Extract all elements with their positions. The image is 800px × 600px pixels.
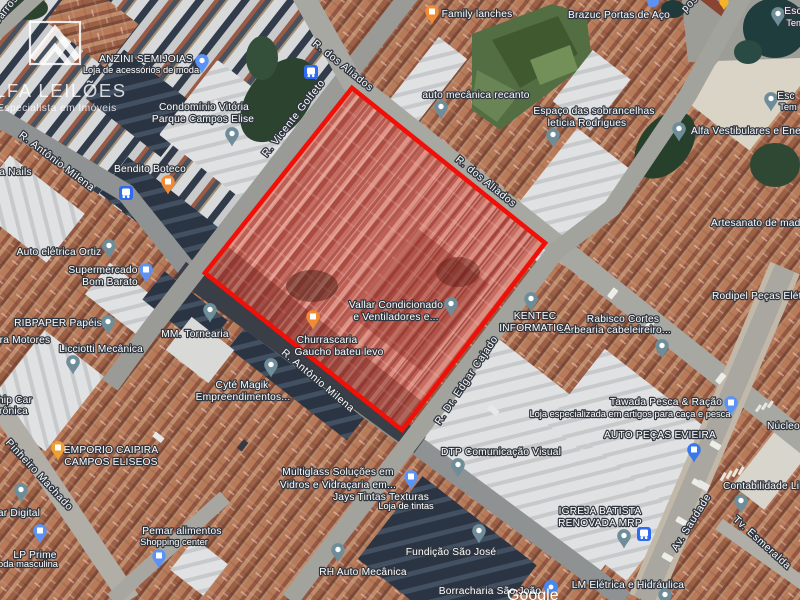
svg-text:Bendito Boteco: Bendito Boteco	[114, 164, 186, 175]
svg-text:DTP Comunicação Visual: DTP Comunicação Visual	[441, 447, 561, 458]
svg-text:ANZINI SEMIJOIAS: ANZINI SEMIJOIAS	[99, 54, 193, 65]
svg-text:Fundição São José: Fundição São José	[406, 547, 497, 558]
svg-text:Núcleo: Núcleo	[767, 421, 800, 432]
svg-text:EMPORIO CAIPIRA: EMPORIO CAIPIRA	[64, 445, 159, 456]
svg-text:Multiglass Soluções em: Multiglass Soluções em	[282, 467, 393, 478]
svg-text:INFORMATICA: INFORMATICA	[499, 323, 571, 334]
svg-text:RIBPAPER Papéis: RIBPAPER Papéis	[14, 318, 102, 329]
svg-text:hip Car: hip Car	[0, 395, 33, 406]
svg-text:Vidros e Vidraçaria em...: Vidros e Vidraçaria em...	[280, 480, 396, 491]
svg-text:Empreendimentos...: Empreendimentos...	[196, 392, 291, 403]
svg-text:Auto elétrica Ortiz: Auto elétrica Ortiz	[17, 247, 102, 258]
svg-text:Gaucho bateu levo: Gaucho bateu levo	[295, 347, 384, 358]
svg-text:Cyté Magik: Cyté Magik	[216, 380, 270, 391]
svg-text:barbearia cabeleireiro...: barbearia cabeleireiro...	[559, 325, 671, 336]
svg-text:ALFA LEILÕES: ALFA LEILÕES	[0, 80, 127, 101]
svg-text:ila Nails: ila Nails	[0, 167, 32, 178]
svg-text:Espaço das sobrancelhas: Espaço das sobrancelhas	[533, 106, 654, 117]
svg-text:Especialista em Imóveis: Especialista em Imóveis	[0, 103, 117, 114]
svg-text:RH Auto Mecânica: RH Auto Mecânica	[319, 567, 407, 578]
svg-text:AUTO PEÇAS EVIEIRA: AUTO PEÇAS EVIEIRA	[604, 430, 716, 441]
svg-text:Tawada Pesca & Ração: Tawada Pesca & Ração	[610, 397, 722, 408]
svg-text:Brazuc Portas de Aço: Brazuc Portas de Aço	[568, 10, 670, 21]
svg-text:trônica: trônica	[0, 406, 28, 417]
svg-text:Contabilidade Li: Contabilidade Li	[723, 481, 799, 492]
svg-text:MM. Tornearia: MM. Tornearia	[161, 329, 229, 340]
svg-text:Condomínio Vitória: Condomínio Vitória	[159, 102, 249, 113]
svg-text:Loja especializada em artigos: Loja especializada em artigos para caça …	[529, 409, 731, 419]
svg-text:Tem: Tem	[786, 18, 800, 28]
svg-text:Vallar Condicionado: Vallar Condicionado	[349, 300, 443, 311]
svg-text:Pemar alimentos: Pemar alimentos	[142, 526, 221, 537]
svg-text:Parque Campos Elise: Parque Campos Elise	[152, 114, 254, 125]
svg-text:Loja de tintas: Loja de tintas	[378, 501, 434, 511]
svg-text:Churrascaria: Churrascaria	[297, 335, 358, 346]
svg-text:ra Motores: ra Motores	[0, 335, 50, 346]
svg-text:oda masculina: oda masculina	[0, 559, 59, 569]
svg-text:Alfa Vestibulares e Energ: Alfa Vestibulares e Energ	[691, 126, 800, 137]
svg-text:Rodipel Peças Elét...: Rodipel Peças Elét...	[712, 291, 800, 302]
svg-text:CAMPOS ELISEOS: CAMPOS ELISEOS	[64, 457, 157, 468]
svg-text:auto mecânica recanto: auto mecânica recanto	[422, 90, 529, 101]
svg-text:Esc: Esc	[784, 6, 800, 17]
svg-text:e Ventiladores e...: e Ventiladores e...	[353, 312, 438, 323]
svg-text:KENTEC: KENTEC	[514, 311, 557, 322]
svg-text:IGREJA BATISTA: IGREJA BATISTA	[559, 506, 642, 517]
svg-text:Tem: Tem	[779, 102, 797, 112]
svg-text:Rabisco Cortes: Rabisco Cortes	[587, 314, 659, 325]
svg-text:Esc: Esc	[777, 91, 795, 102]
svg-text:Bom Barato: Bom Barato	[82, 277, 138, 288]
svg-text:Licciotti Mecânica: Licciotti Mecânica	[59, 344, 143, 355]
svg-text:Artesanato de mad: Artesanato de mad	[711, 218, 800, 229]
svg-text:Shopping center: Shopping center	[140, 537, 208, 547]
svg-text:Family lanches: Family lanches	[442, 9, 513, 20]
svg-text:Loja de acessórios de moda: Loja de acessórios de moda	[83, 65, 200, 75]
svg-text:ar Digital: ar Digital	[0, 508, 40, 519]
svg-text:leticia Rodrigues: leticia Rodrigues	[548, 118, 627, 129]
svg-text:RENOVADA MRP: RENOVADA MRP	[558, 518, 642, 529]
svg-text:Supermercado: Supermercado	[68, 265, 137, 276]
svg-text:Google: Google	[507, 587, 559, 600]
